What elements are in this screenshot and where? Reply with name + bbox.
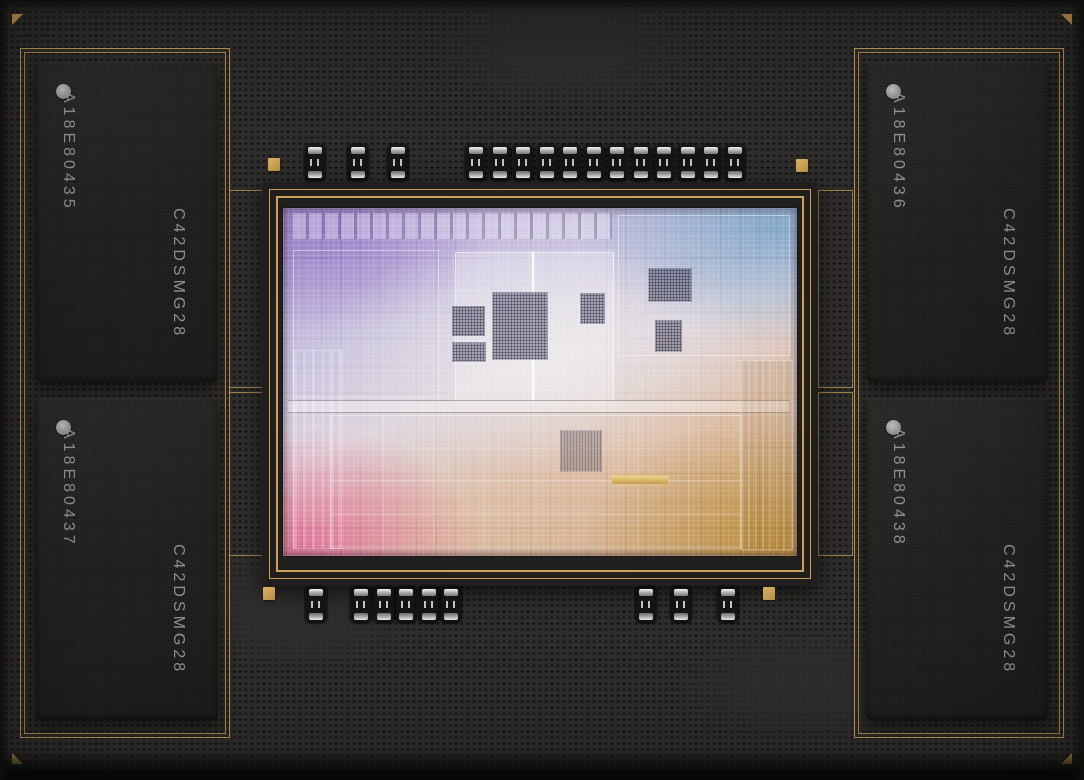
trace-box-left-lower <box>229 392 264 556</box>
gold-pad <box>763 587 775 600</box>
capacitor <box>637 588 655 621</box>
die-block <box>293 213 612 239</box>
die-block <box>452 306 485 336</box>
capacitor <box>719 588 737 621</box>
fiducial-triangle-bottom-right-icon <box>1061 753 1072 764</box>
capacitor <box>375 588 393 621</box>
capacitor <box>655 146 673 179</box>
die-block <box>580 293 605 324</box>
memory-chip-top-right: A18E80436 C42DSMG28 <box>866 62 1048 382</box>
die-block <box>293 350 342 549</box>
fiducial-triangle-top-right-icon <box>1061 14 1072 25</box>
memory-chip-bottom-right: A18E80438 C42DSMG28 <box>866 398 1048 720</box>
memory-chip-bottom-left: A18E80437 C42DSMG28 <box>36 398 218 720</box>
capacitor <box>467 146 485 179</box>
capacitor <box>349 146 367 179</box>
capacitor <box>672 588 690 621</box>
capacitor <box>397 588 415 621</box>
gold-pad <box>268 158 280 171</box>
die-block <box>288 400 789 413</box>
trace-box-right-upper <box>818 190 853 388</box>
chip-marking-secondary: C42DSMG28 <box>999 208 1017 339</box>
memory-chip-top-left: A18E80435 C42DSMG28 <box>36 62 218 382</box>
capacitor <box>585 146 603 179</box>
gold-pad <box>796 159 808 172</box>
capacitor <box>608 146 626 179</box>
capacitor <box>561 146 579 179</box>
package-edge-left <box>0 0 10 780</box>
capacitor <box>491 146 509 179</box>
soc-die <box>283 208 797 556</box>
die-block <box>532 252 535 402</box>
chip-marking-secondary: C42DSMG28 <box>169 208 187 339</box>
soc-substrate <box>262 182 818 586</box>
chip-package: A18E80435 C42DSMG28 A18E80436 C42DSMG28 … <box>0 0 1084 780</box>
capacitor <box>538 146 556 179</box>
capacitor <box>306 146 324 179</box>
die-block <box>560 430 602 472</box>
package-edge-right <box>1071 0 1084 780</box>
die-block <box>618 215 790 356</box>
chip-marking-secondary: C42DSMG28 <box>999 544 1017 675</box>
capacitor <box>726 146 744 179</box>
capacitor <box>702 146 720 179</box>
capacitor <box>307 588 325 621</box>
trace-box-left-upper <box>229 190 264 388</box>
chip-marking-primary: A18E80435 <box>59 92 77 212</box>
die-block <box>648 268 692 302</box>
capacitor <box>420 588 438 621</box>
capacitor <box>632 146 650 179</box>
capacitor <box>352 588 370 621</box>
fiducial-triangle-bottom-left-icon <box>12 753 23 764</box>
die-block <box>455 252 614 402</box>
capacitor <box>442 588 460 621</box>
chip-marking-primary: A18E80437 <box>59 428 77 548</box>
fiducial-triangle-top-left-icon <box>12 14 23 25</box>
chip-marking-secondary: C42DSMG28 <box>169 544 187 675</box>
capacitor <box>679 146 697 179</box>
die-block <box>492 292 548 360</box>
die-block <box>655 320 682 352</box>
die-block <box>452 342 486 362</box>
chip-marking-primary: A18E80436 <box>889 92 907 212</box>
die-block <box>330 415 742 549</box>
die-block <box>740 360 793 550</box>
capacitor <box>389 146 407 179</box>
die-block <box>612 476 668 484</box>
capacitor <box>514 146 532 179</box>
gold-pad <box>263 587 275 600</box>
package-edge-bottom <box>0 750 1084 780</box>
package-edge-top <box>0 0 1084 12</box>
chip-marking-primary: A18E80438 <box>889 428 907 548</box>
trace-box-right-lower <box>818 392 853 556</box>
die-block <box>293 250 439 398</box>
